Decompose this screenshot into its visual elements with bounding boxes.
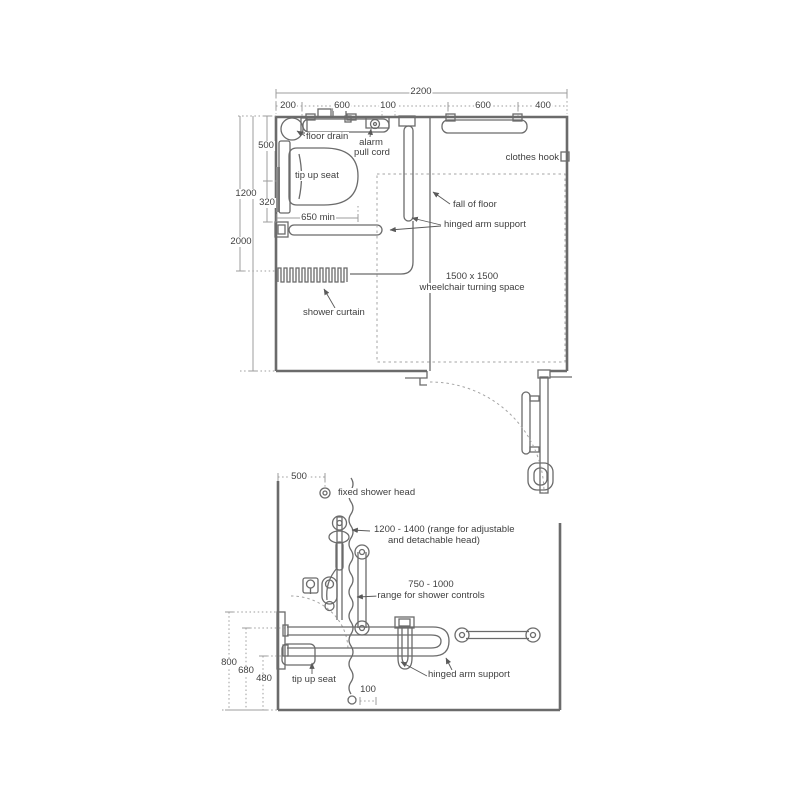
hinged-arm-support-label-plan: hinged arm support <box>443 220 527 230</box>
dim-seg-600a: 600 <box>333 101 351 111</box>
horizontal-grab-rail <box>466 632 529 639</box>
dim-overall-width: 2200 <box>409 87 432 97</box>
diagram-linework <box>0 0 800 800</box>
dim-800: 800 <box>220 658 238 668</box>
tip-up-seat-label-elevation: tip up seat <box>291 675 337 685</box>
tip-up-seat-elevation <box>282 644 315 665</box>
hinged-arm-support-label-elevation: hinged arm support <box>427 670 511 680</box>
dim-1200: 1200 <box>234 189 257 199</box>
head-range-label-2: and detachable head) <box>387 536 481 546</box>
controls-range-label-2: range for shower controls <box>376 591 485 601</box>
dim-100: 100 <box>359 685 377 695</box>
dim-2000: 2000 <box>229 237 252 247</box>
seat-swing-arc <box>291 596 348 650</box>
dim-480: 480 <box>255 674 273 684</box>
alarm-pull-cord-label-2: pull cord <box>353 148 391 158</box>
shower-curtain-label: shower curtain <box>302 308 366 318</box>
shower-slide-rail <box>337 517 342 620</box>
floor-drain-symbol <box>281 118 303 140</box>
door-swing-arc <box>430 382 544 493</box>
shower-hose <box>327 568 337 600</box>
hinged-arm-support-plan-h <box>289 225 382 235</box>
tip-up-seat-label-plan: tip up seat <box>294 171 340 181</box>
clothes-hook-label: clothes hook <box>505 153 560 163</box>
dim-650-min: 650 min <box>300 213 336 223</box>
hose-outlet <box>325 602 334 611</box>
fall-of-floor-label: fall of floor <box>452 200 498 210</box>
dim-320: 320 <box>258 198 276 208</box>
turning-space-label-1: 1500 x 1500 <box>445 272 499 282</box>
vertical-grab-rail <box>358 552 366 628</box>
dim-seg-600b: 600 <box>474 101 492 111</box>
head-range-label-1: 1200 - 1400 (range for adjustable <box>373 525 516 535</box>
dim-seg-400: 400 <box>534 101 552 111</box>
shower-curtain-zigzag <box>278 268 347 282</box>
dim-seg-100: 100 <box>379 101 397 111</box>
dim-500: 500 <box>257 141 275 151</box>
floor-drain-label: floor drain <box>305 132 349 142</box>
fixed-shower-head-label: fixed shower head <box>337 488 416 498</box>
adjustable-shower-head <box>329 531 349 543</box>
fixed-shower-head-symbol <box>320 488 330 498</box>
controls-range-label-1: 750 - 1000 <box>407 580 454 590</box>
dim-500-elevation: 500 <box>290 472 308 482</box>
accessible-shower-room-drawing: 2200 200 600 100 600 400 500 1200 320 20… <box>0 0 800 800</box>
door-pull-rail <box>522 392 530 454</box>
dim-seg-200: 200 <box>279 101 297 111</box>
turning-space-label-2: wheelchair turning space <box>418 283 525 293</box>
shower-curtain-elevation <box>349 478 353 694</box>
grab-rail-right <box>442 120 527 133</box>
dim-680: 680 <box>237 666 255 676</box>
